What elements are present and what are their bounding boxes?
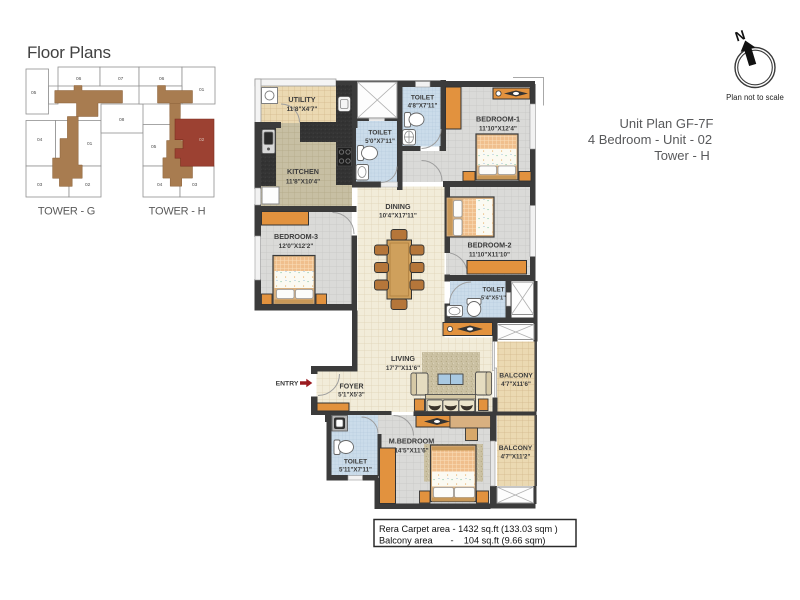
svg-text:4'7"X11'6": 4'7"X11'6": [501, 381, 531, 388]
svg-text:06: 06: [76, 76, 82, 82]
svg-text:4'8"X7'11": 4'8"X7'11": [408, 103, 438, 110]
svg-text:02: 02: [85, 182, 91, 188]
svg-text:01: 01: [199, 87, 205, 93]
svg-text:04: 04: [157, 182, 163, 188]
svg-text:5'1"X5'3": 5'1"X5'3": [338, 392, 365, 399]
svg-text:5'4"X5'1": 5'4"X5'1": [481, 296, 506, 302]
svg-text:03: 03: [192, 182, 198, 188]
svg-text:5'11"X7'11": 5'11"X7'11": [339, 467, 372, 474]
svg-text:05: 05: [31, 90, 37, 96]
svg-text:BALCONY: BALCONY: [499, 373, 533, 380]
svg-text:Balcony area - 104 sq: Balcony area - 104 sq.ft (9.66 sqm): [379, 536, 545, 546]
svg-text:04: 04: [37, 137, 43, 143]
svg-text:01: 01: [87, 141, 93, 147]
svg-text:TOWER - H: TOWER - H: [149, 206, 206, 218]
svg-text:LIVING: LIVING: [391, 354, 415, 363]
svg-text:11'8"X10'4": 11'8"X10'4": [286, 179, 320, 186]
svg-text:ENTRY: ENTRY: [276, 381, 299, 388]
svg-text:Tower - H: Tower - H: [654, 148, 710, 163]
svg-text:5'0"X7'11": 5'0"X7'11": [365, 138, 395, 145]
svg-text:11'10"X11'10": 11'10"X11'10": [469, 252, 510, 259]
svg-text:08: 08: [119, 117, 125, 123]
svg-text:BEDROOM-1: BEDROOM-1: [476, 115, 520, 124]
svg-text:4 Bedroom - Unit - 02: 4 Bedroom - Unit - 02: [588, 132, 712, 147]
svg-text:M.BEDROOM: M.BEDROOM: [389, 437, 435, 446]
svg-text:14'5"X11'6": 14'5"X11'6": [394, 448, 428, 455]
svg-text:TOILET: TOILET: [344, 459, 367, 466]
svg-text:Rera Carpet area - 1432 sq.ft: Rera Carpet area - 1432 sq.ft (133.03 sq…: [379, 524, 558, 534]
svg-text:FOYER: FOYER: [339, 384, 363, 391]
svg-text:05: 05: [151, 144, 157, 150]
svg-text:BEDROOM-2: BEDROOM-2: [468, 241, 512, 250]
svg-text:BEDROOM-3: BEDROOM-3: [274, 232, 318, 241]
svg-text:TOILET: TOILET: [368, 130, 391, 137]
svg-text:Unit Plan GF-7F: Unit Plan GF-7F: [620, 116, 714, 131]
svg-text:DINING: DINING: [385, 202, 411, 211]
svg-text:12'0"X12'2": 12'0"X12'2": [279, 243, 314, 250]
svg-text:07: 07: [118, 76, 124, 82]
svg-text:03: 03: [37, 182, 43, 188]
svg-text:4'7"X11'2": 4'7"X11'2": [501, 454, 531, 461]
svg-text:11'8"X4'7": 11'8"X4'7": [287, 106, 318, 113]
svg-text:02: 02: [199, 137, 205, 143]
svg-text:11'10"X12'4": 11'10"X12'4": [479, 126, 517, 133]
svg-text:TOILET: TOILET: [483, 287, 505, 294]
svg-text:TOILET: TOILET: [411, 95, 434, 102]
svg-text:Floor Plans: Floor Plans: [27, 43, 111, 62]
svg-text:10'4"X17'11": 10'4"X17'11": [379, 213, 417, 220]
svg-text:KITCHEN: KITCHEN: [287, 167, 319, 176]
svg-text:17'7"X11'6": 17'7"X11'6": [386, 365, 420, 372]
svg-text:06: 06: [159, 76, 165, 82]
svg-text:UTILITY: UTILITY: [288, 95, 315, 104]
svg-text:Plan not to scale: Plan not to scale: [726, 93, 784, 102]
svg-text:TOWER - G: TOWER - G: [38, 206, 95, 218]
svg-text:BALCONY: BALCONY: [499, 445, 533, 452]
